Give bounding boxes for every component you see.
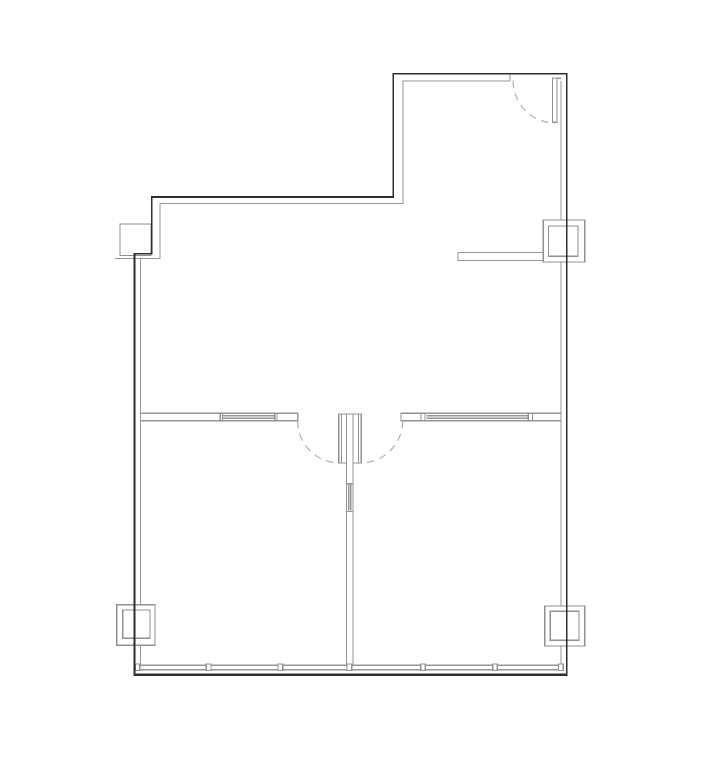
floor-plan xyxy=(0,0,727,765)
exterior-wall-outline xyxy=(135,74,567,676)
window-mullion-2 xyxy=(206,664,211,671)
upper-suite-inner-face xyxy=(115,81,510,259)
door-swing-center-right xyxy=(361,421,403,463)
column-top-left xyxy=(120,224,151,256)
partition-left-glazing-tick-b xyxy=(275,413,277,420)
partition-left-glazing-tick-a xyxy=(220,413,222,420)
window-mullion-1 xyxy=(135,664,140,671)
partition-right-glazing-tick xyxy=(528,413,532,420)
partition-right-jamb-tick xyxy=(421,413,425,420)
partition-wall-right-glazing xyxy=(427,416,529,419)
column-bottom-right-inner xyxy=(550,611,579,640)
floor-plan-sheet xyxy=(0,0,727,765)
door-leaf-center-right xyxy=(359,414,362,463)
window-mullion-5 xyxy=(421,664,426,671)
door-swing-top-right xyxy=(513,81,556,124)
door-leaf-top-right xyxy=(553,78,558,122)
column-bottom-left-inner xyxy=(123,610,150,638)
door-leaf-center-left xyxy=(339,414,342,463)
center-partition-marker xyxy=(347,484,354,512)
partition-right-jamb-box xyxy=(401,413,421,420)
center-partition-wall xyxy=(347,414,354,665)
window-mullion-7 xyxy=(559,664,564,671)
column-right-inner xyxy=(549,226,578,256)
window-mullion-4 xyxy=(347,664,352,671)
stub-wall-upper-right xyxy=(458,252,549,260)
window-mullion-6 xyxy=(493,664,498,671)
partition-wall-left xyxy=(141,413,298,420)
door-swing-center-left xyxy=(298,421,340,463)
partition-wall-left-glazing xyxy=(223,416,275,419)
window-mullion-3 xyxy=(278,664,283,671)
